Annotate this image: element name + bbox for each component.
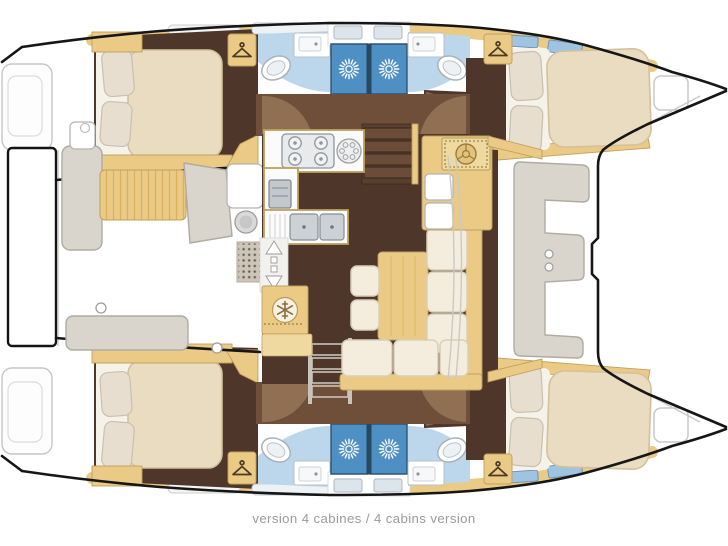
fridge-icon: [269, 180, 291, 208]
stern-platforms: [2, 64, 58, 454]
helm-dial-icon: [456, 144, 476, 164]
nav-station: [422, 136, 492, 230]
catamaran-floor-plan: version 4 cabines / 4 cabins version: [0, 0, 728, 546]
stairs-port: [362, 124, 418, 184]
round-burner: [337, 139, 361, 163]
entry-door: [260, 238, 288, 292]
aft-platform: [8, 148, 56, 346]
cockpit-aft-bench: [66, 316, 188, 350]
freezer-cabinet: [262, 286, 312, 356]
snowflake-icon: [273, 298, 298, 323]
nav-seat: [425, 203, 453, 229]
cockpit-module: [227, 164, 263, 208]
double-sink: [290, 214, 344, 240]
cockpit-corner-seat: [184, 163, 232, 243]
plan-caption: version 4 cabines / 4 cabins version: [252, 511, 475, 526]
foredeck-inner-edge: [592, 150, 603, 368]
floor-plan-page: version 4 cabines / 4 cabins version: [0, 0, 728, 546]
cockpit-seat-cushion: [100, 170, 186, 220]
cockpit-step: [70, 122, 95, 149]
nav-seat: [425, 174, 453, 200]
saloon: [256, 94, 542, 424]
forward-cockpit-bench: [514, 162, 589, 358]
cockpit-bench-back: [62, 146, 102, 250]
